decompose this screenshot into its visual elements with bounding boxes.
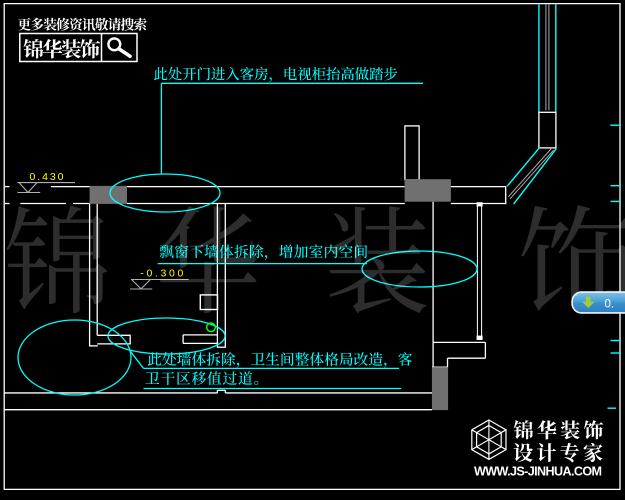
svg-text:-0.300: -0.300 xyxy=(140,268,183,280)
svg-text:0.: 0. xyxy=(605,298,615,310)
svg-text:WWW.JS-JINHUA.COM: WWW.JS-JINHUA.COM xyxy=(474,465,602,479)
svg-text:0.430: 0.430 xyxy=(30,171,64,183)
